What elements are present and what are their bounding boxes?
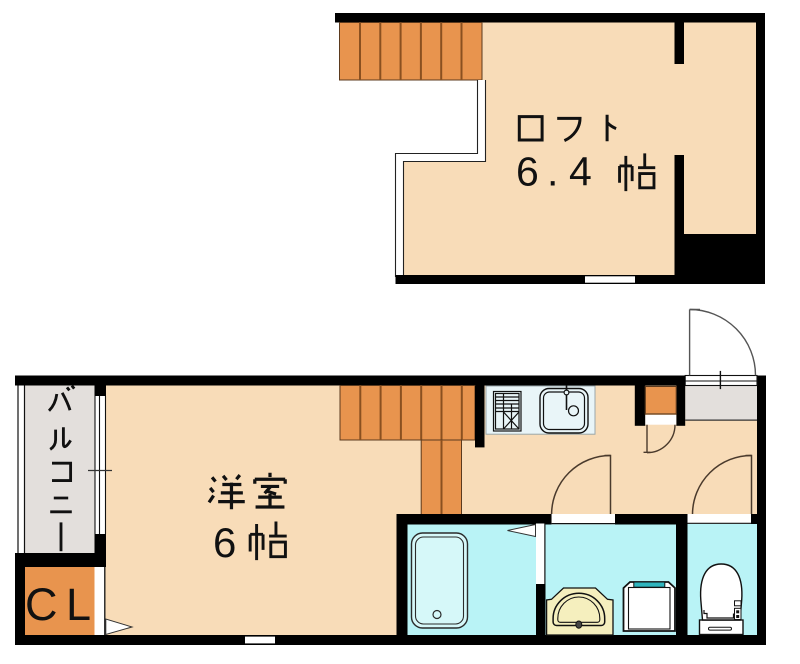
- svg-text:6: 6: [213, 519, 236, 566]
- svg-text:.: .: [547, 149, 558, 195]
- svg-text:4: 4: [569, 149, 592, 195]
- svg-text:6: 6: [516, 149, 539, 195]
- svg-text:L: L: [66, 579, 91, 630]
- svg-text:C: C: [25, 579, 58, 630]
